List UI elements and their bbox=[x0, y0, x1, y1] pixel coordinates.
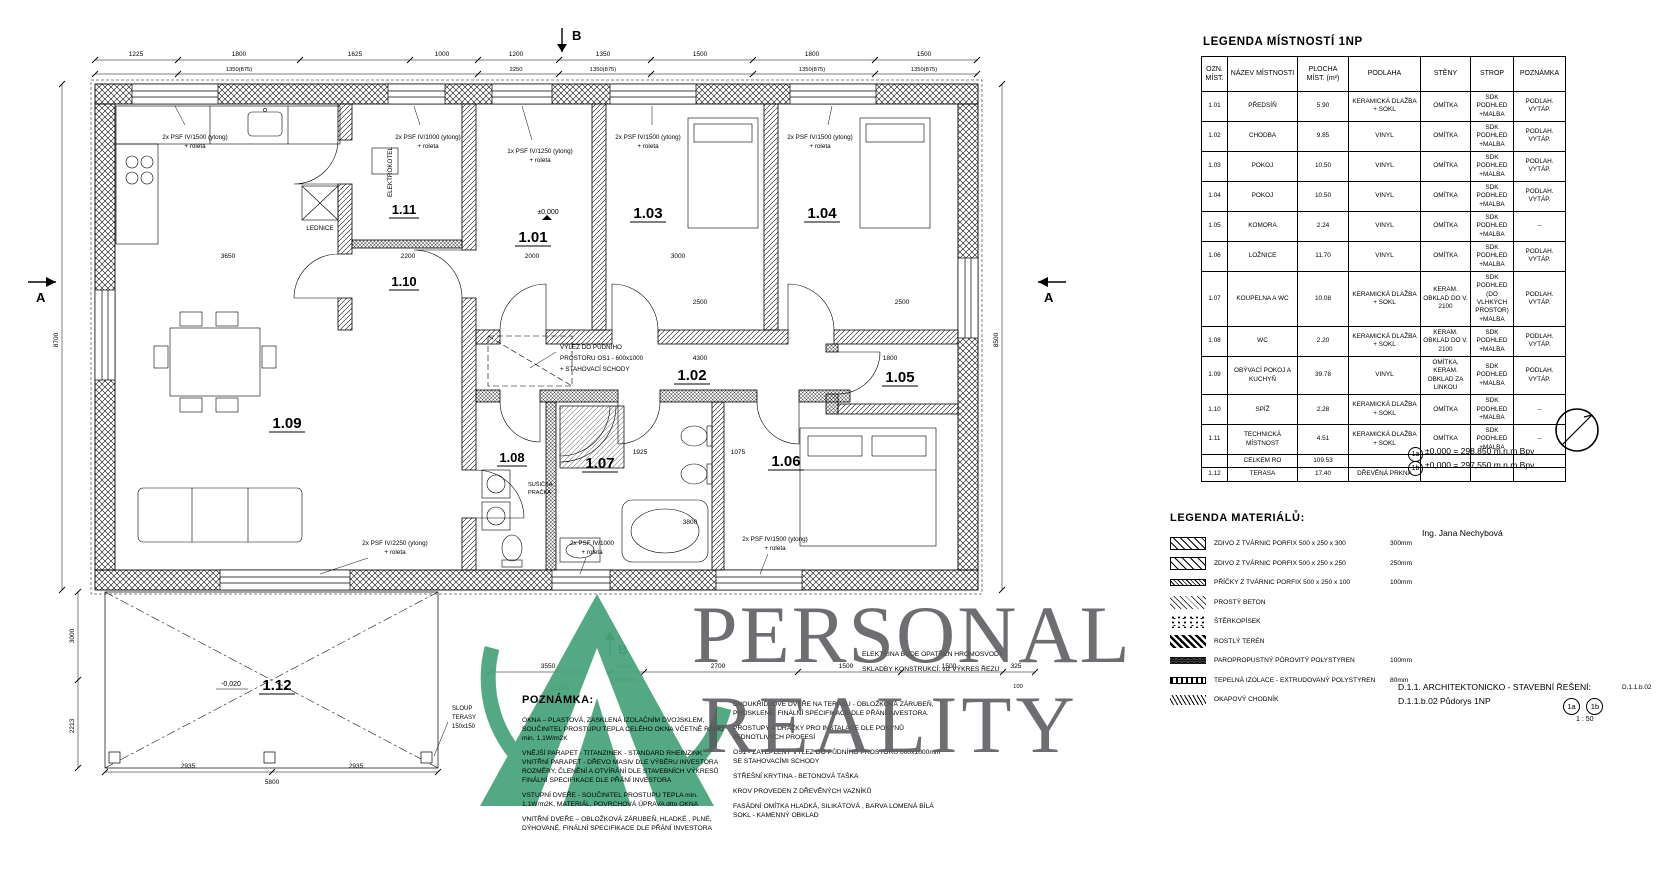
table-cell: SDK PODHLED +MALBA bbox=[1471, 92, 1514, 122]
window-label: 2x PSF IV/1000 + roleta bbox=[570, 540, 615, 574]
room-legend-table: OZN. MÍST. NÁZEV MÍSTNOSTI PLOCHA MÍST. … bbox=[1201, 56, 1566, 482]
section-b-top: B bbox=[557, 28, 581, 52]
dim-label: 3000 bbox=[69, 628, 76, 643]
table-row: 1.09OBÝVACÍ POKOJ A KUCHYŇ39.78VINYLOMÍT… bbox=[1202, 356, 1566, 394]
room-label: 1.11 bbox=[389, 202, 419, 218]
table-cell: OBÝVACÍ POKOJ A KUCHYŇ bbox=[1228, 356, 1298, 394]
window-label: 2x PSF IV/1000 (ytong) + roleta bbox=[395, 106, 460, 150]
room-label: 1.10 bbox=[389, 274, 419, 290]
table-cell: KERAMICKÁ DLAŽBA + SOKL bbox=[1349, 395, 1421, 425]
col-header: POZNÁMKA bbox=[1514, 57, 1566, 92]
col-header: STROP bbox=[1471, 57, 1514, 92]
svg-text:+ roleta: + roleta bbox=[581, 549, 603, 556]
table-cell: 2.28 bbox=[1298, 395, 1349, 425]
table-cell: VINYL bbox=[1349, 241, 1421, 271]
dim-label: 1800 bbox=[232, 51, 247, 58]
material-item: PŘÍČKY Z TVÁRNIC PORFIX 500 x 250 x 1001… bbox=[1170, 573, 1430, 593]
badge-1b: 1b bbox=[1586, 698, 1603, 715]
table-row: 1.06LOŽNICE11.70VINYLOMÍTKASDK PODHLED +… bbox=[1202, 241, 1566, 271]
dim-label: 2250 bbox=[510, 67, 523, 73]
table-cell: POKOJ bbox=[1228, 151, 1298, 181]
dim-label: 8500 bbox=[993, 332, 1000, 347]
room-label: 1.05 bbox=[882, 369, 918, 386]
window-label: 2x PSF IV/1500 (ytong) + roleta bbox=[615, 106, 680, 150]
svg-text:1.11: 1.11 bbox=[392, 202, 417, 217]
table-cell: 1.05 bbox=[1202, 211, 1228, 241]
svg-text:1.01: 1.01 bbox=[518, 229, 547, 246]
dim-label: 1625 bbox=[348, 51, 363, 58]
material-item: ZDIVO Z TVÁRNIC PORFIX 500 x 250 x 30030… bbox=[1170, 534, 1430, 554]
dim-label: 3550 bbox=[541, 663, 556, 670]
material-label: OKAPOVÝ CHODNÍK bbox=[1214, 696, 1390, 703]
svg-text:1x PSF IV/1250 (ytong): 1x PSF IV/1250 (ytong) bbox=[507, 148, 572, 155]
dim-label: 1350(875) bbox=[799, 67, 825, 73]
svg-text:+ roleta: + roleta bbox=[637, 143, 659, 150]
lednice-label: LEDNICE bbox=[306, 225, 333, 232]
material-label: ROSTLÝ TERÉN bbox=[1214, 638, 1390, 645]
table-cell: SDK PODHLED +MALBA bbox=[1471, 326, 1514, 356]
table-cell: PODLAH. VYTÁP. bbox=[1514, 356, 1566, 394]
attic-access-label: VÝLEZ DO PŮDNÍHO PROSTORU OS1 - 600x1000… bbox=[530, 342, 644, 373]
window-label: 2x PSF IV/1500 (ytong) + roleta bbox=[742, 536, 807, 574]
titleblock-badges: 1a 1b bbox=[1563, 694, 1605, 715]
table-cell: LOŽNICE bbox=[1228, 241, 1298, 271]
table-cell: 5.90 bbox=[1298, 92, 1349, 122]
svg-text:2x PSF IV/2250 (ytong): 2x PSF IV/2250 (ytong) bbox=[362, 540, 427, 547]
svg-text:2x PSF IV/1000 (ytong): 2x PSF IV/1000 (ytong) bbox=[395, 134, 460, 141]
pracka-label: PRAČKA bbox=[528, 489, 551, 496]
room-label: 1.12 bbox=[259, 677, 295, 694]
svg-text:B: B bbox=[572, 28, 581, 43]
table-cell: KOUPELNA A WC bbox=[1228, 271, 1298, 326]
dim-label: 2700 bbox=[711, 663, 726, 670]
material-label: ZDIVO Z TVÁRNIC PORFIX 500 x 250 x 250 bbox=[1214, 560, 1390, 567]
table-row: 1.04POKOJ10.50VINYLOMÍTKASDK PODHLED +MA… bbox=[1202, 181, 1566, 211]
table-cell: OMÍTKA bbox=[1421, 181, 1471, 211]
room-label: 1.01 bbox=[515, 229, 551, 246]
table-header-row: OZN. MÍST. NÁZEV MÍSTNOSTI PLOCHA MÍST. … bbox=[1202, 57, 1566, 92]
table-cell: 109.53 bbox=[1298, 455, 1349, 468]
svg-text:1.07: 1.07 bbox=[585, 455, 614, 472]
col-header: STĚNY bbox=[1421, 57, 1471, 92]
boiler bbox=[372, 148, 398, 174]
dim-label: 1350 bbox=[596, 51, 611, 58]
terrace-column-label: SLOUP TERASY 150x150 bbox=[434, 706, 476, 756]
col-header: PLOCHA MÍST. (m²) bbox=[1298, 57, 1349, 92]
material-label: TEPELNÁ IZOLACE - EXTRUDOVANÝ POLYSTYREN bbox=[1214, 677, 1390, 684]
svg-text:+ roleta: + roleta bbox=[529, 157, 551, 164]
table-cell: 2.20 bbox=[1298, 326, 1349, 356]
dim-label: 1500 bbox=[693, 51, 708, 58]
material-item: PAROPROPUSTNÝ PÓROVITÝ POLYSTYREN100mm bbox=[1170, 651, 1430, 671]
table-cell: PODLAH. VYTÁP. bbox=[1514, 326, 1566, 356]
window-label: 2x PSF IV/2250 (ytong) + roleta bbox=[320, 540, 428, 574]
table-cell: CELKEM RO bbox=[1228, 455, 1298, 468]
elevation-b-text: ±0,000 = 297,550 m.n.m Bpv bbox=[1425, 460, 1534, 470]
svg-text:+ roleta: + roleta bbox=[764, 545, 786, 552]
titleblock-drawing: D.1.1.b.02 Půdorys 1NP bbox=[1398, 696, 1491, 706]
table-cell: PŘEDSÍŇ bbox=[1228, 92, 1298, 122]
col-header: NÁZEV MÍSTNOSTI bbox=[1228, 57, 1298, 92]
material-thickness: 100mm bbox=[1390, 657, 1430, 664]
table-cell: OMÍTKA bbox=[1421, 92, 1471, 122]
svg-text:1.06: 1.06 bbox=[771, 453, 800, 470]
table-cell: 1.04 bbox=[1202, 181, 1228, 211]
note-paragraph: STŘEŠNÍ KRYTINA - BETONOVÁ TAŠKA bbox=[733, 772, 945, 781]
table-row: 1.08WC2.20KERAMICKÁ DLAŽBA + SOKLKERAM. … bbox=[1202, 326, 1566, 356]
elevation-note-b: 1b±0,000 = 297,550 m.n.m Bpv bbox=[1408, 460, 1534, 476]
svg-text:+ roleta: + roleta bbox=[384, 549, 406, 556]
table-cell: 1.02 bbox=[1202, 121, 1228, 151]
table-cell: VINYL bbox=[1349, 356, 1421, 394]
notes-title: POZNÁMKA: bbox=[522, 694, 594, 706]
window-label: 2x PSF IV/1500 (ytong) + roleta bbox=[162, 106, 227, 150]
svg-text:1.08: 1.08 bbox=[499, 450, 524, 465]
svg-text:+ roleta: + roleta bbox=[184, 143, 206, 150]
material-swatch-icon bbox=[1170, 635, 1206, 648]
dim-label: 2500 bbox=[693, 299, 708, 306]
table-cell: 4.51 bbox=[1298, 425, 1349, 455]
section-a-right: A bbox=[1038, 277, 1066, 305]
dim-label: 1350(875) bbox=[226, 67, 252, 73]
table-cell: 1.06 bbox=[1202, 241, 1228, 271]
dim-label: 100 bbox=[1013, 684, 1023, 690]
table-cell: 1.01 bbox=[1202, 92, 1228, 122]
material-label: PAROPROPUSTNÝ PÓROVITÝ POLYSTYREN bbox=[1214, 657, 1390, 664]
table-cell: OMÍTKA bbox=[1421, 211, 1471, 241]
dim-label: 1200 bbox=[509, 51, 524, 58]
room-label: 1.03 bbox=[630, 205, 666, 222]
dim-label: 1800 bbox=[883, 355, 898, 362]
dim-label: 1225 bbox=[129, 51, 144, 58]
furniture bbox=[116, 106, 936, 567]
table-cell: WC bbox=[1228, 326, 1298, 356]
dim-label: 3000 bbox=[671, 253, 686, 260]
materials-list: ZDIVO Z TVÁRNIC PORFIX 500 x 250 x 30030… bbox=[1170, 534, 1430, 710]
table-cell: VINYL bbox=[1349, 121, 1421, 151]
material-swatch-icon bbox=[1170, 557, 1206, 570]
table-cell: 39.78 bbox=[1298, 356, 1349, 394]
material-label: ZDIVO Z TVÁRNIC PORFIX 500 x 250 x 300 bbox=[1214, 540, 1390, 547]
notes-column-2: DVOUKŘÍDLOVÉ DVEŘE NA TERASU - OBLOŽKOVÁ… bbox=[733, 700, 945, 826]
material-item: OKAPOVÝ CHODNÍK bbox=[1170, 690, 1430, 710]
table-cell: OMÍTKA bbox=[1421, 395, 1471, 425]
dim-label: 1350(875) bbox=[911, 67, 937, 73]
notes-column-3: ELEKTŘINA BUDE OPATŘEN HROMOSVODYSKLADBY… bbox=[862, 650, 1030, 680]
dim-label: 8700 bbox=[53, 332, 60, 347]
table-cell: SDK PODHLED +MALBA bbox=[1471, 395, 1514, 425]
table-cell: PODLAH. VYTÁP. bbox=[1514, 151, 1566, 181]
table-cell: VINYL bbox=[1349, 181, 1421, 211]
dim-label: 2213 bbox=[69, 718, 76, 733]
badge-1b: 1b bbox=[1408, 461, 1423, 476]
table-cell: 9.85 bbox=[1298, 121, 1349, 151]
svg-text:1.05: 1.05 bbox=[885, 369, 914, 386]
col-header: OZN. MÍST. bbox=[1202, 57, 1228, 92]
dim-label: 1000 bbox=[435, 51, 450, 58]
table-cell: 10.08 bbox=[1298, 271, 1349, 326]
svg-text:1.09: 1.09 bbox=[272, 415, 301, 432]
table-cell: SDK PODHLED +MALBA bbox=[1471, 241, 1514, 271]
notes-column-1: OKNA – PLASTOVÁ, ZASKLENÁ IZOLAČNÍM DVOJ… bbox=[522, 716, 728, 840]
material-swatch-icon bbox=[1170, 537, 1206, 550]
table-cell: SDK PODHLED +MALBA bbox=[1471, 121, 1514, 151]
note-paragraph: FASÁDNÍ OMÍTKA HLADKÁ, SILIKÁTOVÁ , BARV… bbox=[733, 802, 945, 820]
table-row: 1.05KOMORA2.24VINYLOMÍTKASDK PODHLED +MA… bbox=[1202, 211, 1566, 241]
table-cell: PODLAH. VYTÁP. bbox=[1514, 92, 1566, 122]
material-thickness: 250mm bbox=[1390, 560, 1430, 567]
svg-text:1.12: 1.12 bbox=[262, 677, 291, 694]
table-cell: SPÍŽ bbox=[1228, 395, 1298, 425]
table-cell: 10.50 bbox=[1298, 181, 1349, 211]
dim-label: 2000 bbox=[525, 253, 540, 260]
note-paragraph: SKLADBY KONSTRUKCÍ: viz VÝKRES ŘEZU bbox=[862, 665, 1030, 674]
material-swatch-icon bbox=[1170, 677, 1206, 684]
svg-text:2x PSF IV/1500 (ytong): 2x PSF IV/1500 (ytong) bbox=[787, 134, 852, 141]
elevation-a-text: ±0,000 = 298,850 m.n.m Bpv bbox=[1425, 446, 1534, 456]
table-cell: SDK PODHLED +MALBA bbox=[1471, 356, 1514, 394]
col-header: PODLAHA bbox=[1349, 57, 1421, 92]
table-cell: POKOJ bbox=[1228, 181, 1298, 211]
table-row: 1.07KOUPELNA A WC10.08KERAMICKÁ DLAŽBA +… bbox=[1202, 271, 1566, 326]
note-paragraph: VNITŘNÍ DVEŘE – OBLOŽKOVÁ ZÁRUBEŇ, HLADK… bbox=[522, 815, 728, 833]
table-cell: 2.24 bbox=[1298, 211, 1349, 241]
room-label: 1.08 bbox=[497, 450, 527, 466]
svg-text:2x PSF IV/1500 (ytong): 2x PSF IV/1500 (ytong) bbox=[162, 134, 227, 141]
dim-label: 1350(875) bbox=[590, 67, 616, 73]
svg-text:150x150: 150x150 bbox=[452, 724, 476, 730]
material-item: ROSTLÝ TERÉN bbox=[1170, 632, 1430, 652]
section-a-left: A bbox=[28, 277, 56, 305]
table-cell: OMÍTKA bbox=[1421, 121, 1471, 151]
material-swatch-icon bbox=[1170, 615, 1206, 628]
room-legend-title: LEGENDA MÍSTNOSTÍ 1NP bbox=[1203, 36, 1363, 48]
table-cell: – bbox=[1514, 395, 1566, 425]
svg-text:1.02: 1.02 bbox=[677, 367, 706, 384]
table-cell: TERASA bbox=[1228, 468, 1298, 481]
table-cell: KOMORA bbox=[1228, 211, 1298, 241]
author-name: Ing. Jana Nechybová bbox=[1422, 528, 1503, 538]
svg-text:TERASY: TERASY bbox=[452, 715, 476, 721]
table-cell: OMÍTKA bbox=[1421, 151, 1471, 181]
svg-text:-0,020: -0,020 bbox=[221, 681, 241, 688]
level-marks: ±0,000 -0,020 bbox=[216, 209, 559, 689]
room-label: 1.09 bbox=[269, 415, 305, 432]
material-label: ŠTĚRKOPÍSEK bbox=[1214, 618, 1390, 625]
table-cell: OMÍTKA bbox=[1421, 241, 1471, 271]
room-label: 1.06 bbox=[768, 453, 804, 470]
table-cell: KERAM. OBKLAD DO V. 2100 bbox=[1421, 271, 1471, 326]
drawing-number: D.1.1.b.02 bbox=[1622, 684, 1652, 691]
table-cell: KERAMICKÁ DLAŽBA + SOKL bbox=[1349, 271, 1421, 326]
table-cell: SDK PODHLED +MALBA bbox=[1471, 211, 1514, 241]
dim-label: 1500 bbox=[839, 663, 854, 670]
drawing-sheet: 1225 1800 1625 1000 1200 1350 1500 1800 … bbox=[0, 0, 1680, 875]
elektrokotel-label: ELEKTROKOTEL bbox=[387, 146, 394, 197]
note-paragraph: OS1 - ZATEPLENÝ VÝLEZ DO PŮDNÍHO PROSTOR… bbox=[733, 748, 945, 766]
material-swatch-icon bbox=[1170, 695, 1206, 705]
table-cell: 17.40 bbox=[1298, 468, 1349, 481]
svg-text:+ STAHOVACÍ SCHODY: + STAHOVACÍ SCHODY bbox=[560, 364, 630, 373]
dim-label: 4300 bbox=[693, 355, 708, 362]
table-cell: PODLAH. VYTÁP. bbox=[1514, 241, 1566, 271]
material-item: TEPELNÁ IZOLACE - EXTRUDOVANÝ POLYSTYREN… bbox=[1170, 671, 1430, 691]
material-thickness: 300mm bbox=[1390, 540, 1430, 547]
svg-text:1.10: 1.10 bbox=[391, 274, 416, 289]
legend-table-body: 1.01PŘEDSÍŇ5.90KERAMICKÁ DLAŽBA + SOKLOM… bbox=[1202, 92, 1566, 482]
table-row: 1.02CHODBA9.85VINYLOMÍTKASDK PODHLED +MA… bbox=[1202, 121, 1566, 151]
table-cell: PODLAH. VYTÁP. bbox=[1514, 181, 1566, 211]
table-row: 1.10SPÍŽ2.28KERAMICKÁ DLAŽBA + SOKLOMÍTK… bbox=[1202, 395, 1566, 425]
dim-label: 1925 bbox=[633, 449, 648, 456]
dim-label: 1500 bbox=[917, 51, 932, 58]
badge-1a: 1a bbox=[1563, 698, 1580, 715]
table-cell: PODLAH. VYTÁP. bbox=[1514, 271, 1566, 326]
table-cell: SDK PODHLED (DO VLHKÝCH PROSTOR) +MALBA bbox=[1471, 271, 1514, 326]
svg-text:1.04: 1.04 bbox=[807, 205, 837, 222]
material-thickness: 100mm bbox=[1390, 579, 1430, 586]
table-cell: KERAMICKÁ DLAŽBA + SOKL bbox=[1349, 326, 1421, 356]
material-item: PROSTÝ BETON bbox=[1170, 593, 1430, 613]
dim-label: 1800 bbox=[805, 51, 820, 58]
dim-label: 5800 bbox=[265, 779, 280, 786]
window-label: 2x PSF IV/1500 (ytong) + roleta bbox=[787, 106, 852, 150]
table-cell: SDK PODHLED +MALBA bbox=[1471, 181, 1514, 211]
table-cell: – bbox=[1514, 211, 1566, 241]
dim-label: 1075 bbox=[731, 449, 746, 456]
material-swatch-icon bbox=[1170, 657, 1206, 664]
svg-text:VÝLEZ DO PŮDNÍHO: VÝLEZ DO PŮDNÍHO bbox=[560, 342, 622, 351]
material-item: ŠTĚRKOPÍSEK bbox=[1170, 612, 1430, 632]
material-item: ZDIVO Z TVÁRNIC PORFIX 500 x 250 x 25025… bbox=[1170, 554, 1430, 574]
note-paragraph: ELEKTŘINA BUDE OPATŘEN HROMOSVODY bbox=[862, 650, 1030, 659]
table-cell: KERAMICKÁ DLAŽBA + SOKL bbox=[1349, 92, 1421, 122]
dim-label: 3650 bbox=[221, 253, 236, 260]
drawing-scale: 1 : 50 bbox=[1576, 716, 1594, 723]
svg-text:A: A bbox=[36, 290, 46, 305]
svg-text:A: A bbox=[1044, 290, 1054, 305]
table-cell: 1.11 bbox=[1202, 425, 1228, 455]
table-cell: 1.07 bbox=[1202, 271, 1228, 326]
table-cell: VINYL bbox=[1349, 211, 1421, 241]
table-cell: TECHNICKÁ MÍSTNOST bbox=[1228, 425, 1298, 455]
table-cell: KERAM. OBKLAD DO V. 2100 bbox=[1421, 326, 1471, 356]
table-cell: 1.12 bbox=[1202, 468, 1228, 481]
room-label: 1.04 bbox=[804, 205, 840, 222]
table-cell: 1.03 bbox=[1202, 151, 1228, 181]
susicka-label: SUŠIČKA bbox=[528, 481, 553, 488]
table-cell: VINYL bbox=[1349, 151, 1421, 181]
material-swatch-icon bbox=[1170, 596, 1206, 609]
note-paragraph: PROSTUPY A DRÁŽKY PRO INSTALACE DLE POKY… bbox=[733, 724, 945, 742]
material-label: PŘÍČKY Z TVÁRNIC PORFIX 500 x 250 x 100 bbox=[1214, 579, 1390, 586]
dim-label: 2935 bbox=[349, 763, 364, 770]
table-cell: PODLAH. VYTÁP. bbox=[1514, 121, 1566, 151]
svg-text:+ roleta: + roleta bbox=[417, 143, 439, 150]
svg-text:+ roleta: + roleta bbox=[809, 143, 831, 150]
titleblock-section: D.1.1. ARCHITEKTONICKO - STAVEBNÍ ŘEŠENÍ… bbox=[1398, 682, 1591, 692]
table-cell bbox=[1202, 455, 1228, 468]
materials-legend-title: LEGENDA MATERIÁLŮ: bbox=[1170, 512, 1305, 524]
plan-annotations: 2x PSF IV/1500 (ytong) + roleta 2x PSF I… bbox=[162, 106, 852, 756]
material-swatch-icon bbox=[1170, 579, 1206, 586]
svg-text:SLOUP: SLOUP bbox=[452, 706, 472, 712]
table-cell: 1.08 bbox=[1202, 326, 1228, 356]
window-label: 1x PSF IV/1250 (ytong) + roleta bbox=[507, 106, 572, 164]
table-cell: SDK PODHLED +MALBA bbox=[1471, 151, 1514, 181]
note-paragraph: KROV PROVEDEN Z DŘEVĚNÝCH VAZNÍKŮ bbox=[733, 787, 945, 796]
table-cell: 1.10 bbox=[1202, 395, 1228, 425]
svg-text:2x PSF IV/1500 (ytong): 2x PSF IV/1500 (ytong) bbox=[615, 134, 680, 141]
table-cell: 1.09 bbox=[1202, 356, 1228, 394]
dim-label: 3800 bbox=[683, 519, 698, 526]
room-label: 1.07 bbox=[582, 455, 618, 472]
svg-text:±0,000: ±0,000 bbox=[537, 209, 558, 216]
dim-label: 2935 bbox=[181, 763, 196, 770]
note-paragraph: VSTUPNÍ DVEŘE - SOUČINITEL PROSTUPU TEPL… bbox=[522, 791, 728, 809]
note-paragraph: VNĚJŠÍ PARAPET - TITANZINEK - STANDARD R… bbox=[522, 749, 728, 785]
table-row: 1.03POKOJ10.50VINYLOMÍTKASDK PODHLED +MA… bbox=[1202, 151, 1566, 181]
note-paragraph: OKNA – PLASTOVÁ, ZASKLENÁ IZOLAČNÍM DVOJ… bbox=[522, 716, 728, 743]
dim-label: 2200 bbox=[401, 253, 416, 260]
note-paragraph: DVOUKŘÍDLOVÉ DVEŘE NA TERASU - OBLOŽKOVÁ… bbox=[733, 700, 945, 718]
svg-text:1.03: 1.03 bbox=[633, 205, 662, 222]
dim-label: 2500 bbox=[895, 299, 910, 306]
svg-text:2x PSF IV/1500 (ytong): 2x PSF IV/1500 (ytong) bbox=[742, 536, 807, 543]
room-label: 1.02 bbox=[674, 367, 710, 384]
table-cell: OMÍTKA, KERAM. OBKLAD ZA LINKOU bbox=[1421, 356, 1471, 394]
table-cell: 10.50 bbox=[1298, 151, 1349, 181]
table-row: 1.01PŘEDSÍŇ5.90KERAMICKÁ DLAŽBA + SOKLOM… bbox=[1202, 92, 1566, 122]
table-cell: 11.70 bbox=[1298, 241, 1349, 271]
svg-text:PROSTORU OS1 - 600x1000: PROSTORU OS1 - 600x1000 bbox=[560, 355, 644, 362]
svg-text:2x PSF IV/1000: 2x PSF IV/1000 bbox=[570, 540, 615, 547]
material-label: PROSTÝ BETON bbox=[1214, 599, 1390, 606]
table-cell: CHODBA bbox=[1228, 121, 1298, 151]
